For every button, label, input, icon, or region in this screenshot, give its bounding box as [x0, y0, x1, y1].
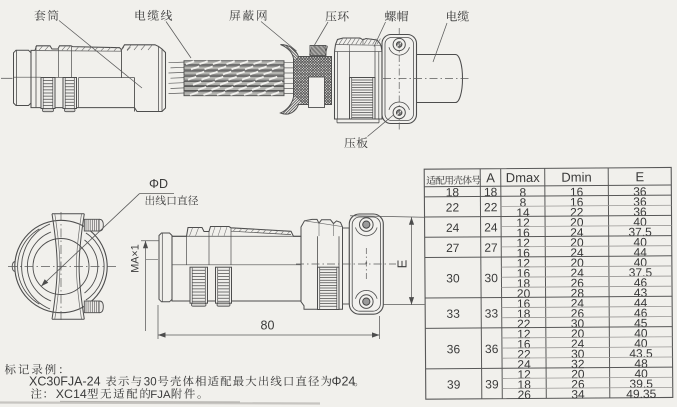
svg-text:80: 80 [261, 319, 275, 333]
svg-text:18: 18 [484, 185, 498, 199]
svg-text:Dmax: Dmax [506, 170, 541, 185]
svg-text:30: 30 [144, 377, 157, 389]
svg-text:24: 24 [446, 221, 460, 235]
svg-text:30: 30 [484, 271, 498, 285]
svg-text:26: 26 [518, 388, 532, 402]
svg-text:E: E [395, 259, 410, 268]
svg-text:18: 18 [446, 185, 460, 199]
svg-text:ΦD: ΦD [149, 177, 168, 191]
svg-text:30: 30 [446, 271, 460, 285]
svg-text:22: 22 [484, 200, 498, 214]
svg-text:33: 33 [446, 307, 460, 321]
svg-text:24: 24 [484, 220, 498, 234]
svg-text:E: E [635, 169, 644, 184]
svg-text:MA×1: MA×1 [130, 244, 142, 273]
svg-text:27: 27 [446, 241, 460, 255]
svg-text:34: 34 [571, 387, 585, 401]
svg-text:FJA: FJA [150, 389, 171, 401]
svg-text:33: 33 [485, 306, 499, 320]
svg-text:39: 39 [485, 377, 499, 391]
svg-text:Φ24: Φ24 [332, 375, 356, 389]
svg-text:49.35: 49.35 [626, 387, 656, 401]
svg-text:A: A [486, 170, 495, 185]
svg-text:22: 22 [446, 200, 460, 214]
svg-text:36: 36 [485, 342, 499, 356]
svg-text:27: 27 [484, 241, 498, 255]
svg-text:36: 36 [447, 342, 461, 356]
svg-text:39: 39 [447, 378, 461, 392]
svg-text:XC14: XC14 [56, 387, 87, 401]
svg-text:Dmin: Dmin [561, 170, 591, 185]
